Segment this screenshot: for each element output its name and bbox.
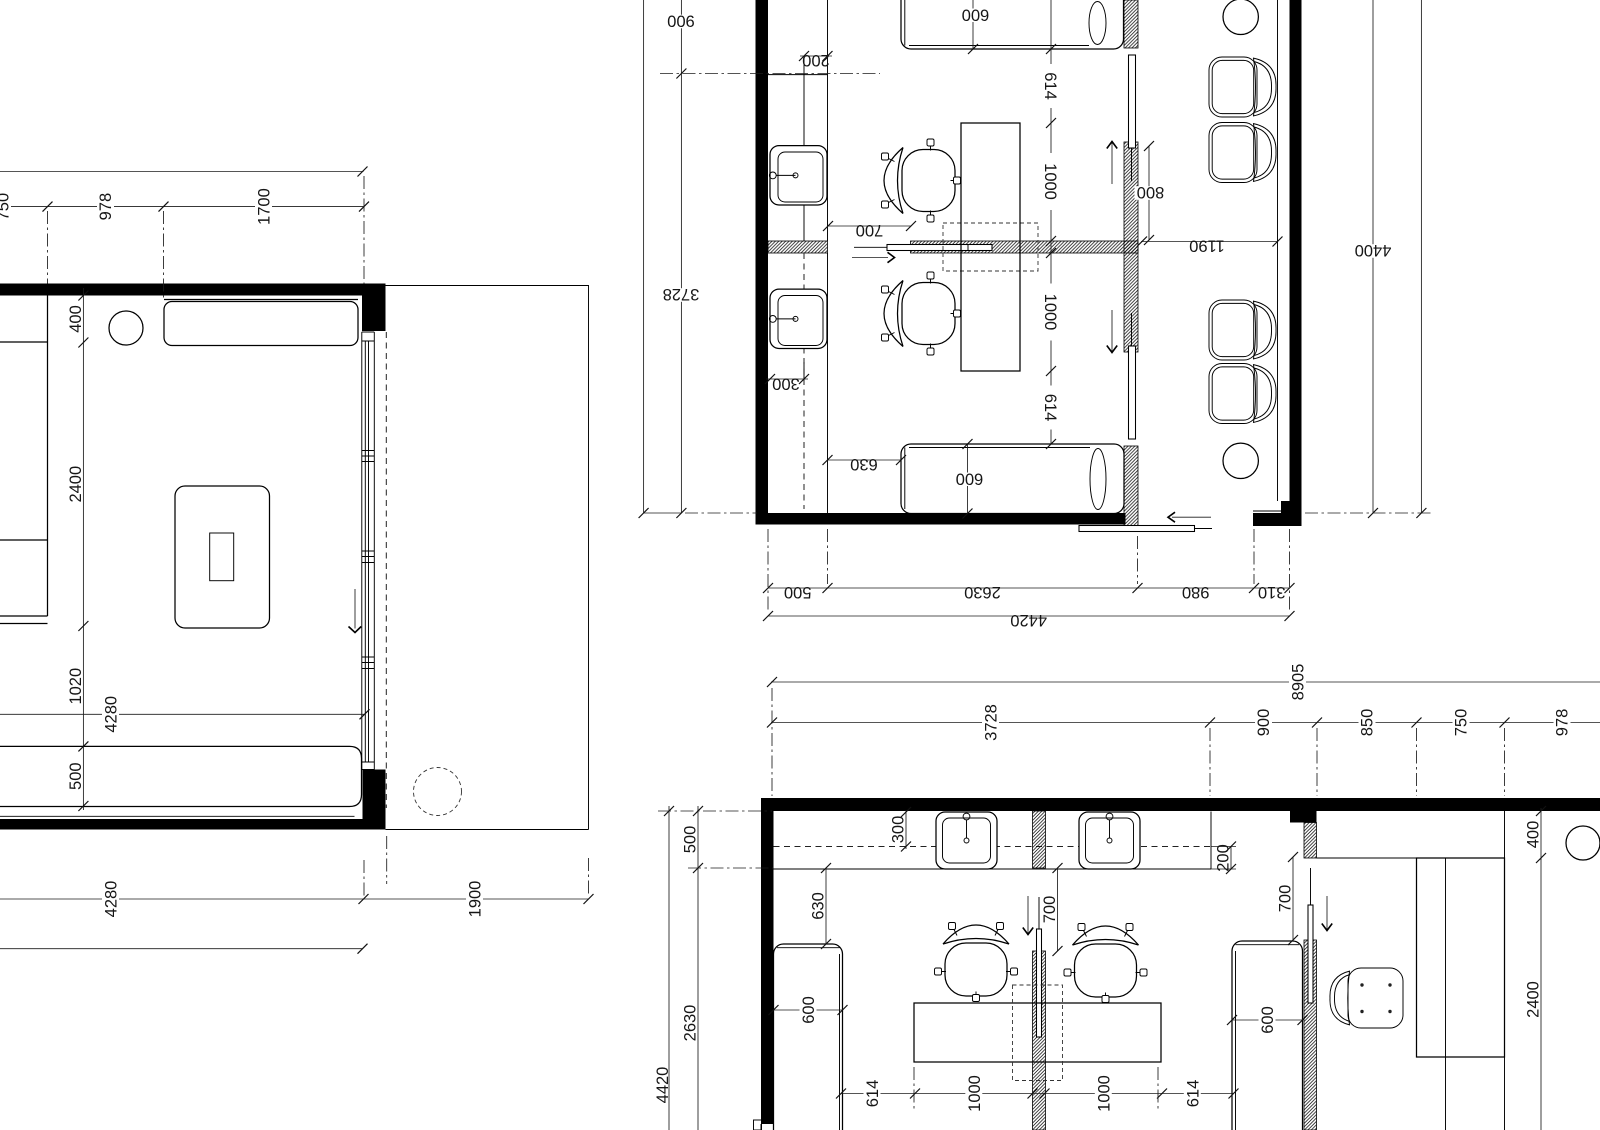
svg-text:630: 630: [850, 455, 878, 473]
svg-text:2400: 2400: [1525, 981, 1543, 1018]
svg-text:614: 614: [1041, 394, 1059, 422]
svg-text:200: 200: [802, 51, 830, 69]
svg-text:1000: 1000: [966, 1075, 984, 1112]
svg-text:1900: 1900: [467, 881, 485, 918]
svg-text:1000: 1000: [1041, 163, 1059, 200]
svg-text:2630: 2630: [682, 1005, 700, 1042]
svg-text:4280: 4280: [103, 881, 121, 918]
svg-text:500: 500: [67, 762, 85, 790]
svg-text:750: 750: [0, 193, 13, 221]
svg-text:700: 700: [1041, 896, 1059, 924]
svg-text:500: 500: [784, 583, 812, 601]
svg-text:1020: 1020: [67, 668, 85, 705]
svg-text:1000: 1000: [1095, 1075, 1113, 1112]
svg-text:700: 700: [1277, 885, 1295, 913]
svg-text:750: 750: [1453, 709, 1471, 737]
svg-text:900: 900: [1255, 709, 1273, 737]
svg-text:600: 600: [956, 469, 984, 487]
svg-text:3728: 3728: [663, 285, 700, 303]
svg-text:850: 850: [1359, 709, 1377, 737]
svg-text:614: 614: [864, 1080, 882, 1108]
svg-text:4420: 4420: [654, 1067, 672, 1104]
svg-text:500: 500: [682, 826, 700, 854]
svg-text:2630: 2630: [964, 583, 1001, 601]
svg-text:978: 978: [1554, 709, 1572, 737]
svg-text:1700: 1700: [256, 188, 274, 225]
svg-text:4400: 4400: [1355, 241, 1392, 259]
svg-text:614: 614: [1184, 1080, 1202, 1108]
svg-text:2400: 2400: [67, 466, 85, 503]
svg-text:978: 978: [97, 193, 115, 221]
svg-text:4280: 4280: [103, 696, 121, 733]
svg-text:700: 700: [856, 221, 884, 239]
svg-text:980: 980: [1182, 583, 1210, 601]
svg-text:200: 200: [1215, 844, 1233, 872]
svg-text:800: 800: [1137, 183, 1165, 201]
svg-text:300: 300: [890, 816, 908, 844]
svg-text:600: 600: [1259, 1006, 1277, 1034]
svg-text:600: 600: [962, 5, 990, 23]
svg-text:300: 300: [772, 375, 800, 393]
svg-text:310: 310: [1258, 583, 1286, 601]
svg-text:630: 630: [810, 892, 828, 920]
svg-text:900: 900: [667, 12, 695, 30]
svg-text:1000: 1000: [1041, 294, 1059, 331]
svg-text:600: 600: [800, 996, 818, 1024]
svg-text:614: 614: [1041, 72, 1059, 100]
svg-text:1190: 1190: [1189, 237, 1224, 255]
svg-text:3728: 3728: [983, 704, 1001, 741]
svg-text:400: 400: [67, 305, 85, 333]
svg-text:4420: 4420: [1010, 611, 1047, 629]
svg-text:8905: 8905: [1290, 664, 1308, 701]
svg-text:400: 400: [1525, 821, 1543, 849]
